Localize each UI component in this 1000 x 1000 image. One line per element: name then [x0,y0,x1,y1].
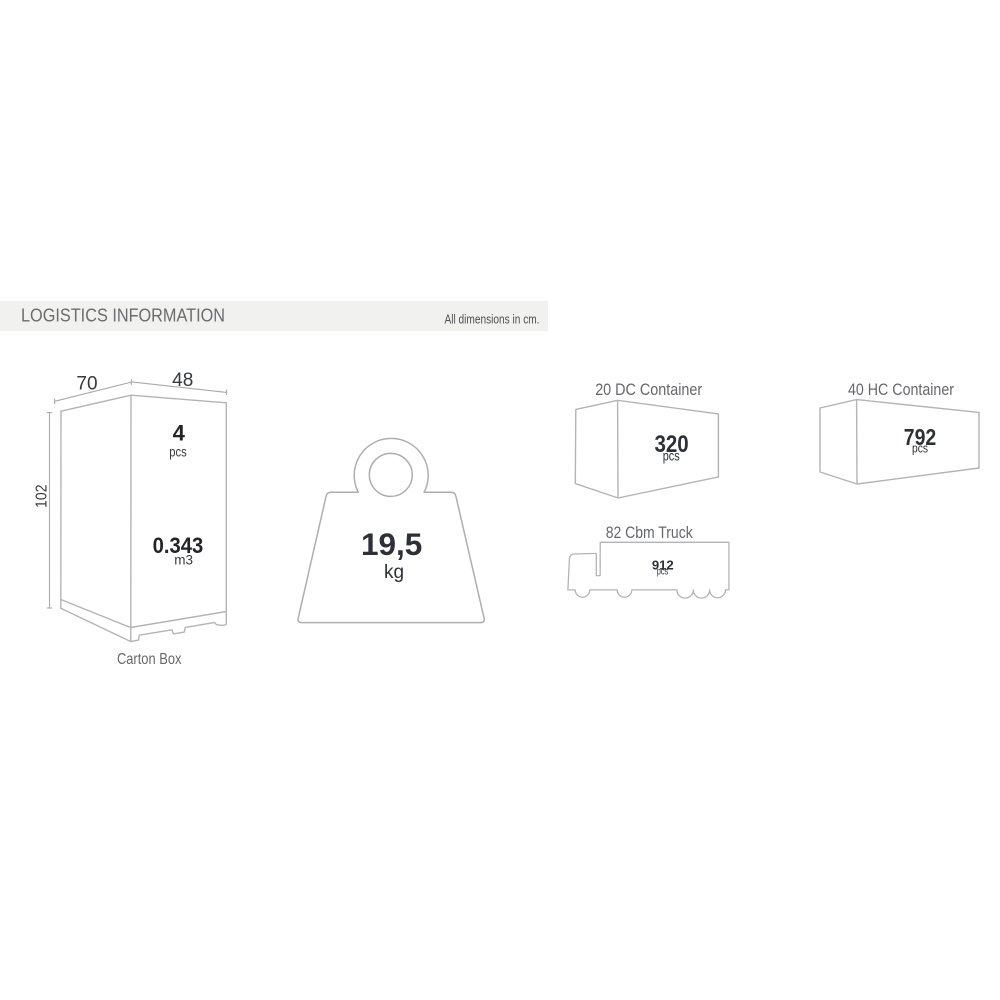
svg-text:102: 102 [33,484,50,508]
svg-text:pcs: pcs [912,440,928,455]
svg-text:m3: m3 [174,553,193,568]
svg-text:pcs: pcs [657,566,669,577]
svg-text:kg: kg [384,562,404,583]
svg-text:48: 48 [172,370,193,391]
svg-text:70: 70 [76,374,97,395]
svg-text:20 DC Container: 20 DC Container [595,380,702,399]
svg-text:All dimensions in cm.: All dimensions in cm. [445,313,540,327]
svg-text:4: 4 [173,421,186,446]
svg-text:Carton Box: Carton Box [117,651,182,668]
svg-text:pcs: pcs [169,444,187,460]
svg-text:40 HC Container: 40 HC Container [848,380,954,399]
svg-text:LOGISTICS INFORMATION: LOGISTICS INFORMATION [21,306,225,326]
svg-text:pcs: pcs [663,448,680,463]
svg-text:19,5: 19,5 [361,526,422,562]
svg-text:82 Cbm Truck: 82 Cbm Truck [606,523,693,542]
